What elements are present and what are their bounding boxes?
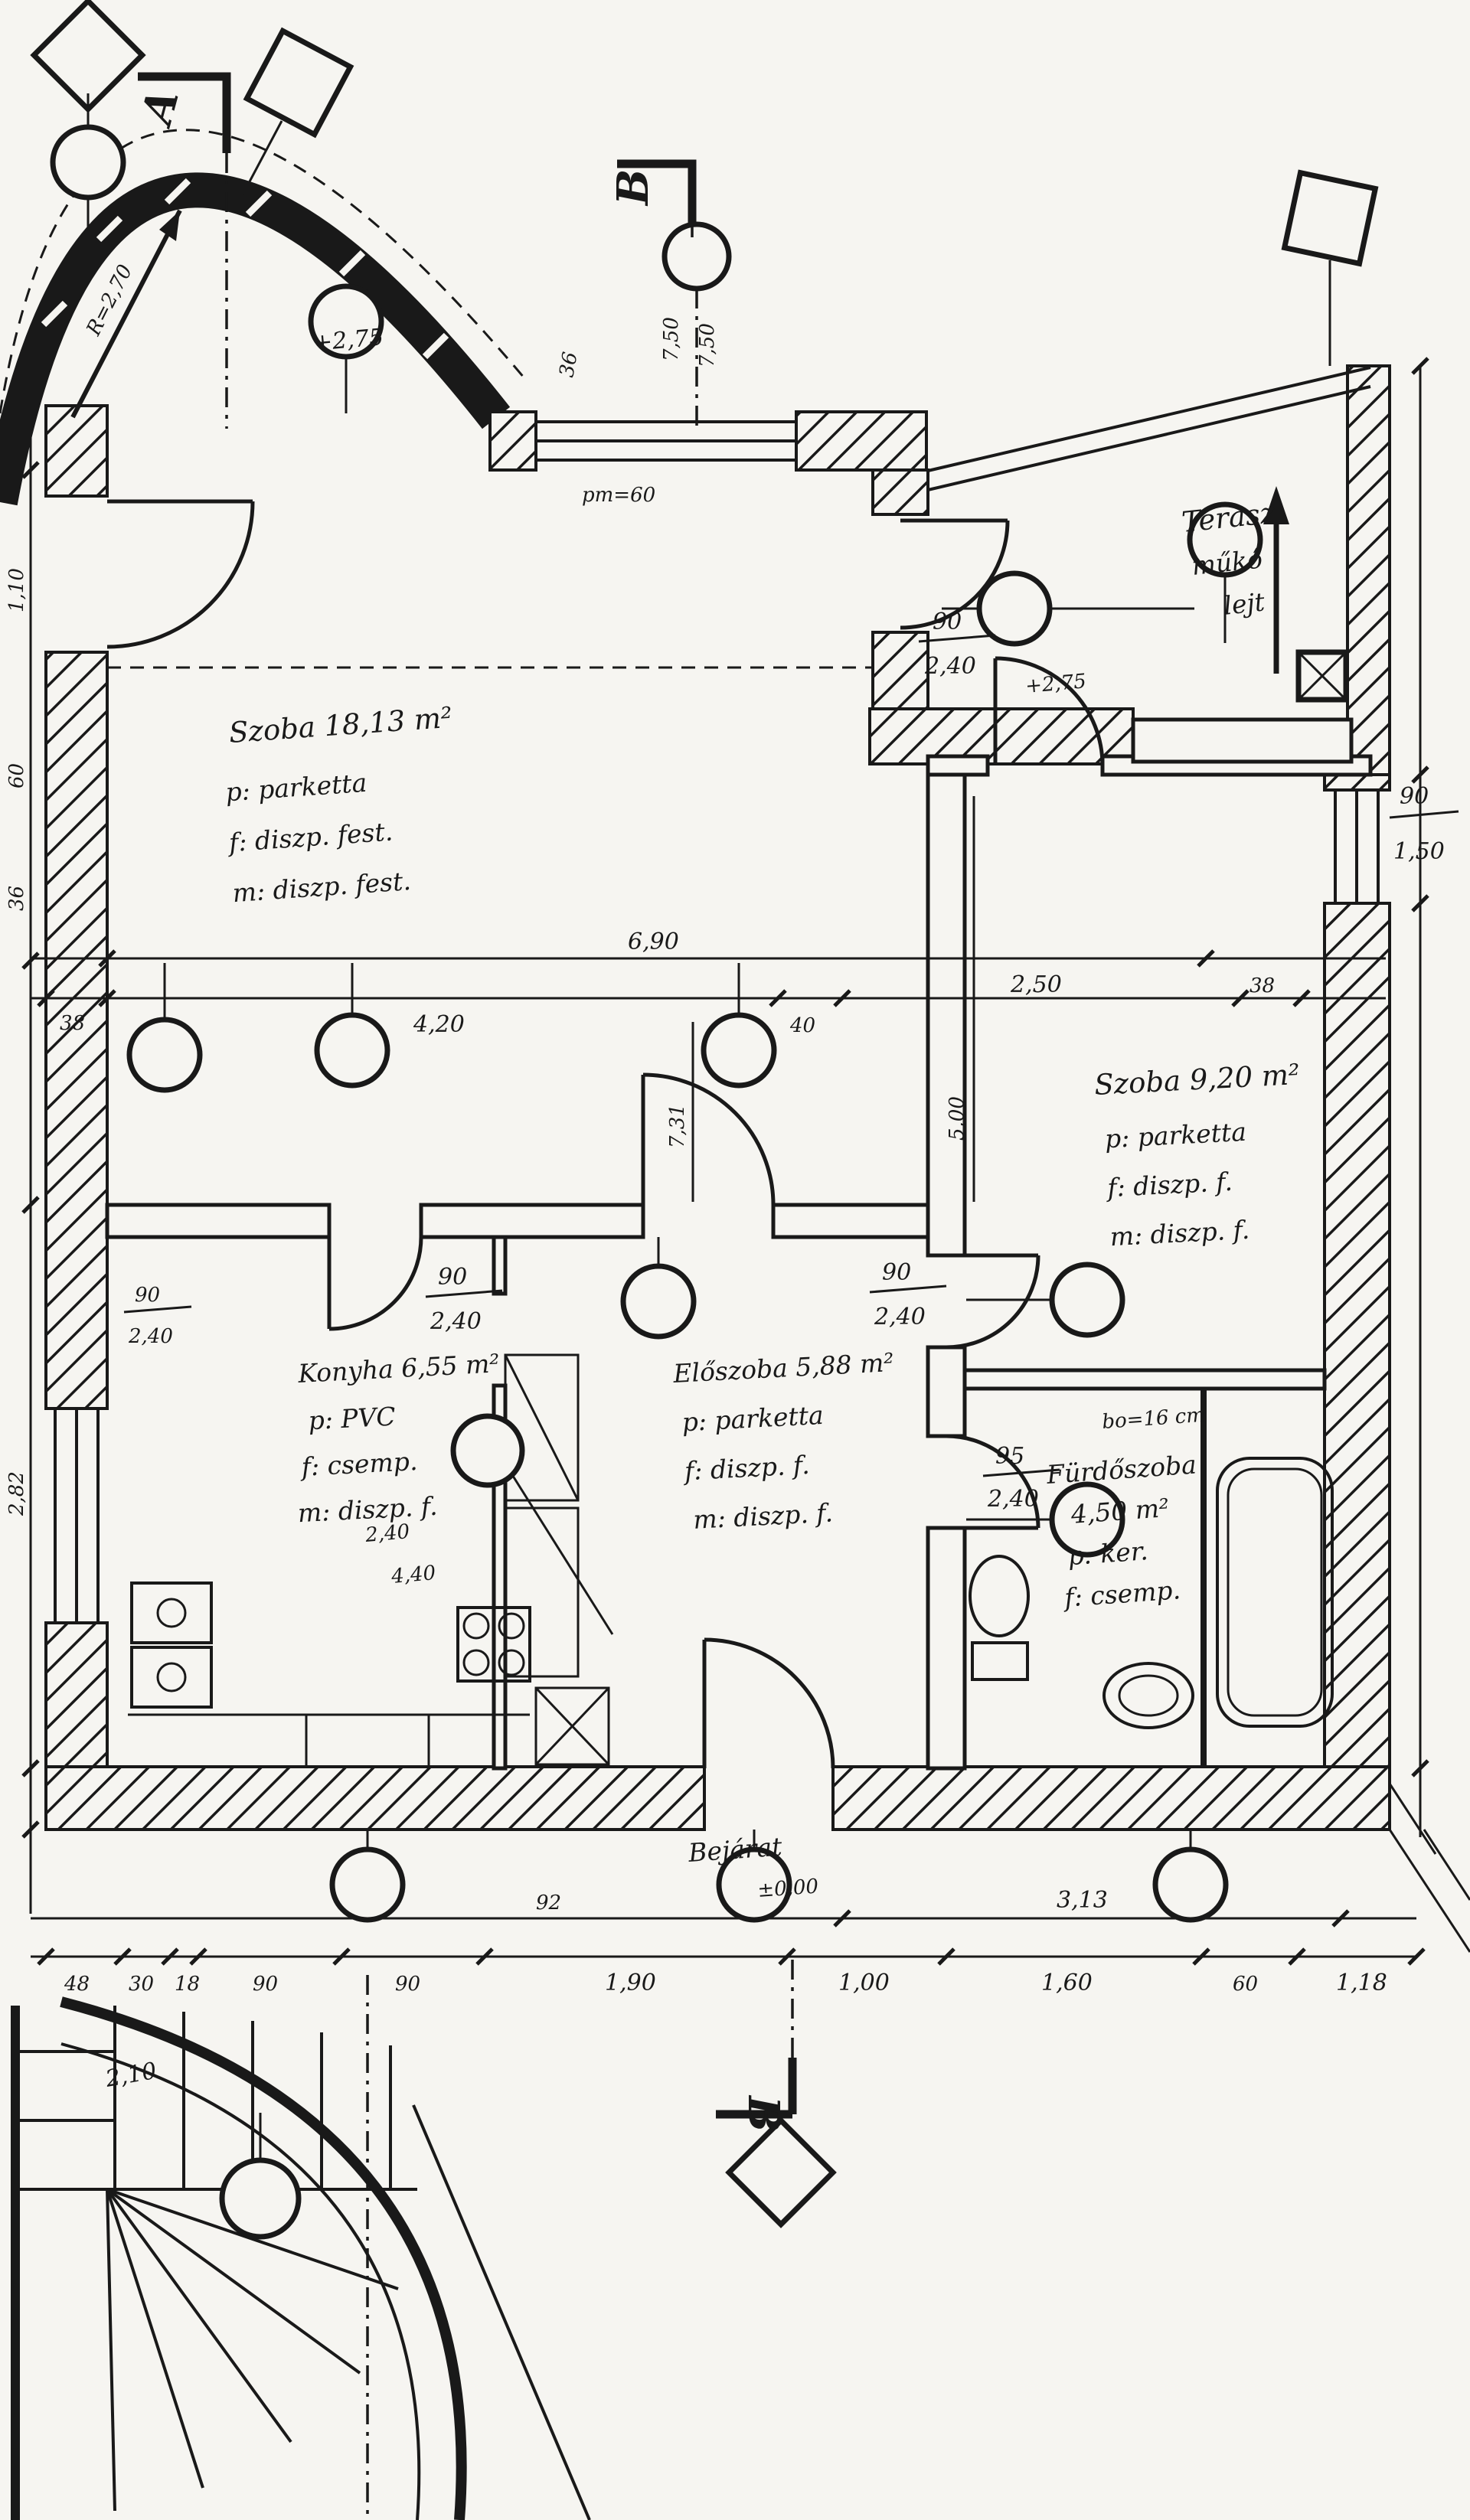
kitchen-440: 4,40 xyxy=(390,1562,436,1588)
wall-thickness-label: bo=16 cm xyxy=(1101,1404,1205,1434)
dim-left-36: 36 xyxy=(5,886,28,911)
left-kitchen-window xyxy=(46,1409,107,1623)
stair-axis-circle xyxy=(222,2160,299,2237)
bathtub xyxy=(1217,1458,1332,1726)
konyha-title: Konyha 6,55 m² xyxy=(296,1348,500,1389)
section-b-top-label: B xyxy=(608,169,658,207)
b-dim-7-50-a: 7,50 xyxy=(660,317,683,361)
staircase xyxy=(15,1975,590,2520)
section-a-label: A xyxy=(130,84,188,133)
konyha-line2: f: csemp. xyxy=(299,1446,419,1482)
bath-door-height: 2,40 xyxy=(987,1486,1039,1513)
furdo-line3: p: ker. xyxy=(1067,1536,1148,1571)
dim-190: 1,90 xyxy=(605,1970,656,1996)
left-dimension-chain: 1,10 60 36 2,82 xyxy=(5,429,38,1914)
floor-plan-svg: A B 7,50 7,50 36 B R=2,70 xyxy=(0,0,1470,2520)
bath-door-width: 95 xyxy=(995,1443,1024,1470)
wc-toilet xyxy=(970,1556,1028,1679)
dim-left-110: 1,10 xyxy=(5,568,28,612)
stair-210: 2,10 xyxy=(103,2058,158,2093)
terrace-door-width: 90 xyxy=(933,609,962,635)
furdo-line4: f: csemp. xyxy=(1061,1575,1181,1613)
top-window xyxy=(536,412,796,470)
dim-90-a: 90 xyxy=(253,1973,278,1996)
section-marker-b-top: B 7,50 7,50 36 xyxy=(555,164,719,429)
b-dim-7-50-b: 7,50 xyxy=(696,323,719,367)
left-pair-width: 90 xyxy=(135,1284,160,1307)
axis-diamond-1 xyxy=(34,1,142,127)
dim-18: 18 xyxy=(175,1973,200,1996)
room2-door-width: 90 xyxy=(882,1259,911,1286)
konyha-line3: m: diszp. f. xyxy=(297,1491,438,1528)
section-b-bottom-label: B xyxy=(738,2094,789,2132)
eloszoba-line1: p: parketta xyxy=(681,1400,825,1438)
wall-cross-marker xyxy=(1298,652,1346,700)
section-marker-b-bottom: B xyxy=(716,1960,792,2132)
right-dimension-chain: 90 1,50 xyxy=(1390,358,1459,1837)
eloszoba-line2: f: diszp. f. xyxy=(681,1450,810,1487)
dim-48: 48 xyxy=(64,1973,90,1996)
kitchen-door-height: 2,40 xyxy=(430,1308,482,1335)
sill-height-label: pm=60 xyxy=(582,484,655,507)
dim-left-282: 2,82 xyxy=(5,1471,28,1516)
room2-door xyxy=(946,1255,1038,1347)
neighbor-hatch-strip xyxy=(1390,1784,1470,1952)
terrace-line1: Terasz xyxy=(1180,496,1276,539)
furdo-line1: Fürdőszoba xyxy=(1045,1449,1197,1490)
room2-line2: f: diszp. f. xyxy=(1104,1167,1233,1203)
dim-40: 40 xyxy=(789,1014,815,1037)
dim-250: 2,50 xyxy=(1010,971,1062,998)
kitchen-sink xyxy=(128,1583,530,1767)
dim-90-b: 90 xyxy=(395,1973,420,1996)
pantry-cabinet xyxy=(505,1355,612,1676)
axis-diamond-2 xyxy=(247,31,350,134)
dim-38-right: 38 xyxy=(1249,974,1275,997)
axis-diamond-4 xyxy=(729,2120,833,2225)
window-sill-label: 1,50 xyxy=(1393,838,1445,865)
konyha-line1: p: PVC xyxy=(308,1401,397,1435)
dim-731: 7,31 xyxy=(666,1104,689,1148)
window-width-label: 90 xyxy=(1400,783,1429,810)
dim-38-left: 38 xyxy=(60,1012,85,1035)
dim-left-60: 60 xyxy=(5,763,28,788)
level-room1: +2,75 xyxy=(312,324,385,357)
room1-label: Szoba 18,13 m² p: parketta f: diszp. fes… xyxy=(218,701,465,909)
dim-500: 5,00 xyxy=(946,1096,969,1141)
terrace-label: Terasz műkő lejt xyxy=(1180,496,1285,624)
room2-line3: m: diszp. f. xyxy=(1109,1215,1250,1252)
eloszoba-title: Előszoba 5,88 m² xyxy=(671,1347,894,1389)
room1-line2: f: diszp. fest. xyxy=(226,816,394,857)
dim-420: 4,20 xyxy=(413,1011,465,1038)
eloszoba-label: Előszoba 5,88 m² p: parketta f: diszp. f… xyxy=(671,1347,902,1536)
left-pair-height: 2,40 xyxy=(128,1325,173,1348)
room2-line1: p: parketta xyxy=(1104,1117,1247,1154)
room1-title: Szoba 18,13 m² xyxy=(228,701,454,749)
room2-label: Szoba 9,20 m² p: parketta f: diszp. f. m… xyxy=(1093,1058,1308,1252)
entrance-door xyxy=(704,1640,833,1768)
dim-92: 92 xyxy=(536,1892,561,1914)
terrace-door-height: 2,40 xyxy=(924,653,976,680)
washbasin xyxy=(1104,1663,1193,1728)
mid-dimension-chain: 6,90 38 4,20 40 2,50 38 xyxy=(31,929,1386,1038)
b-dim-36: 36 xyxy=(555,350,582,379)
axis-diamond-3 xyxy=(1285,173,1376,264)
terrace-line3: lejt xyxy=(1222,586,1266,620)
right-window xyxy=(1325,790,1390,903)
room1-line1: p: parketta xyxy=(224,768,367,808)
dim-313: 3,13 xyxy=(1057,1887,1108,1914)
dim-30: 30 xyxy=(129,1973,154,1996)
blueprint-page: { "colors": {"ink": "#191919", "paper": … xyxy=(0,0,1470,2520)
dim-total-690: 6,90 xyxy=(628,929,679,955)
level-terrace: +2,75 xyxy=(1024,670,1087,698)
eloszoba-line3: m: diszp. f. xyxy=(692,1497,833,1534)
section-marker-a: A xyxy=(130,77,227,429)
windows xyxy=(46,412,1390,1623)
room1-line3: m: diszp. fest. xyxy=(231,866,412,908)
hall-to-room1-door xyxy=(643,1075,773,1205)
dim-160: 1,60 xyxy=(1041,1970,1093,1996)
room2-title: Szoba 9,20 m² xyxy=(1093,1058,1301,1102)
dim-118: 1,18 xyxy=(1336,1970,1387,1996)
hall-closet xyxy=(536,1688,609,1764)
kitchen-door-width: 90 xyxy=(438,1264,467,1291)
room2-door-height: 2,40 xyxy=(874,1304,926,1330)
entrance-level: ±0,00 xyxy=(756,1875,819,1901)
kitchen-door xyxy=(329,1237,421,1329)
room1-left-door xyxy=(107,501,253,647)
dim-60: 60 xyxy=(1233,1973,1258,1996)
furdo-line2: 4,50 m² xyxy=(1070,1493,1171,1529)
dim-100: 1,00 xyxy=(838,1970,890,1996)
